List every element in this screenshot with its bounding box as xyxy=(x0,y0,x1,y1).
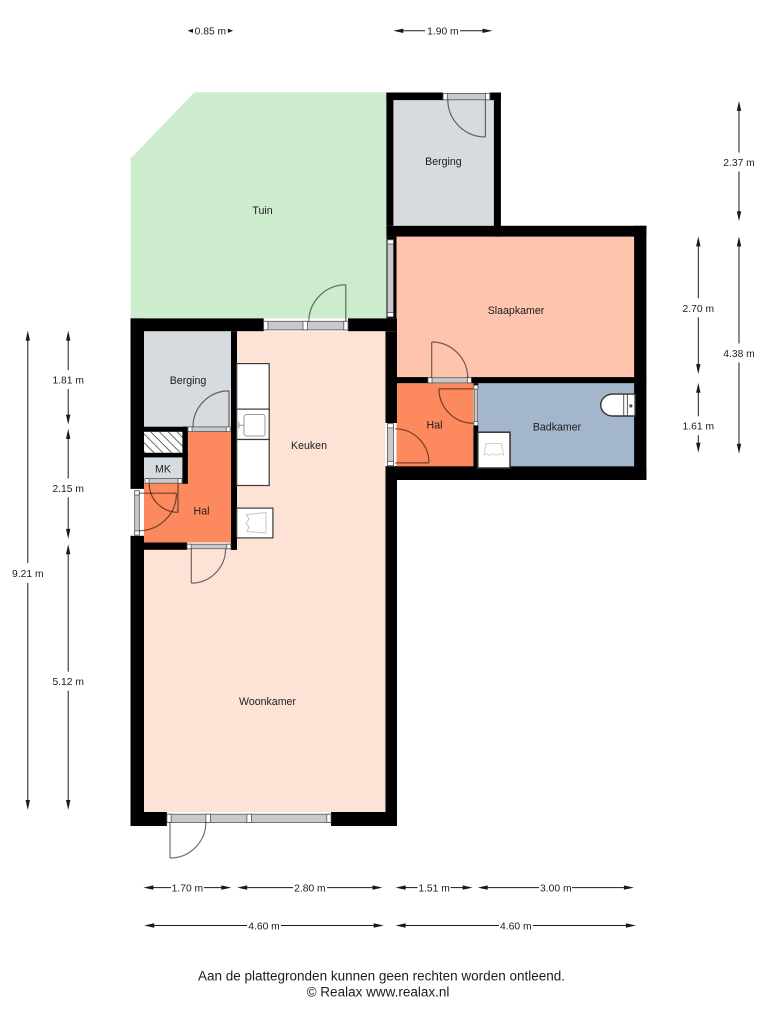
svg-text:Tuin: Tuin xyxy=(252,205,272,217)
svg-text:Berging: Berging xyxy=(170,375,207,387)
svg-text:1.90 m: 1.90 m xyxy=(427,26,458,37)
svg-text:Badkamer: Badkamer xyxy=(533,422,582,434)
svg-text:2.37 m: 2.37 m xyxy=(723,158,754,169)
svg-text:Berging: Berging xyxy=(425,156,462,168)
svg-text:1.51 m: 1.51 m xyxy=(418,884,449,895)
svg-text:MK: MK xyxy=(155,464,171,476)
svg-text:Woonkamer: Woonkamer xyxy=(239,696,296,708)
svg-text:4.38 m: 4.38 m xyxy=(723,349,754,360)
svg-text:Aan de plattegronden kunnen ge: Aan de plattegronden kunnen geen rechten… xyxy=(198,969,565,984)
svg-text:2.70 m: 2.70 m xyxy=(683,304,714,315)
svg-text:0.85 m: 0.85 m xyxy=(195,26,226,37)
svg-text:2.80 m: 2.80 m xyxy=(294,884,325,895)
svg-text:1.81 m: 1.81 m xyxy=(52,376,83,387)
svg-text:Keuken: Keuken xyxy=(291,440,327,452)
svg-text:Hal: Hal xyxy=(194,506,210,518)
svg-text:1.61 m: 1.61 m xyxy=(683,422,714,433)
svg-text:© Realax www.realax.nl: © Realax www.realax.nl xyxy=(307,985,450,1000)
svg-text:1.70 m: 1.70 m xyxy=(172,884,203,895)
svg-text:9.21 m: 9.21 m xyxy=(12,569,43,580)
svg-text:5.12 m: 5.12 m xyxy=(52,677,83,688)
svg-text:Hal: Hal xyxy=(427,420,443,432)
svg-text:Slaapkamer: Slaapkamer xyxy=(488,305,545,317)
svg-text:2.15 m: 2.15 m xyxy=(52,484,83,495)
svg-text:4.60 m: 4.60 m xyxy=(500,922,531,933)
svg-text:3.00 m: 3.00 m xyxy=(540,884,571,895)
svg-text:4.60 m: 4.60 m xyxy=(248,922,279,933)
